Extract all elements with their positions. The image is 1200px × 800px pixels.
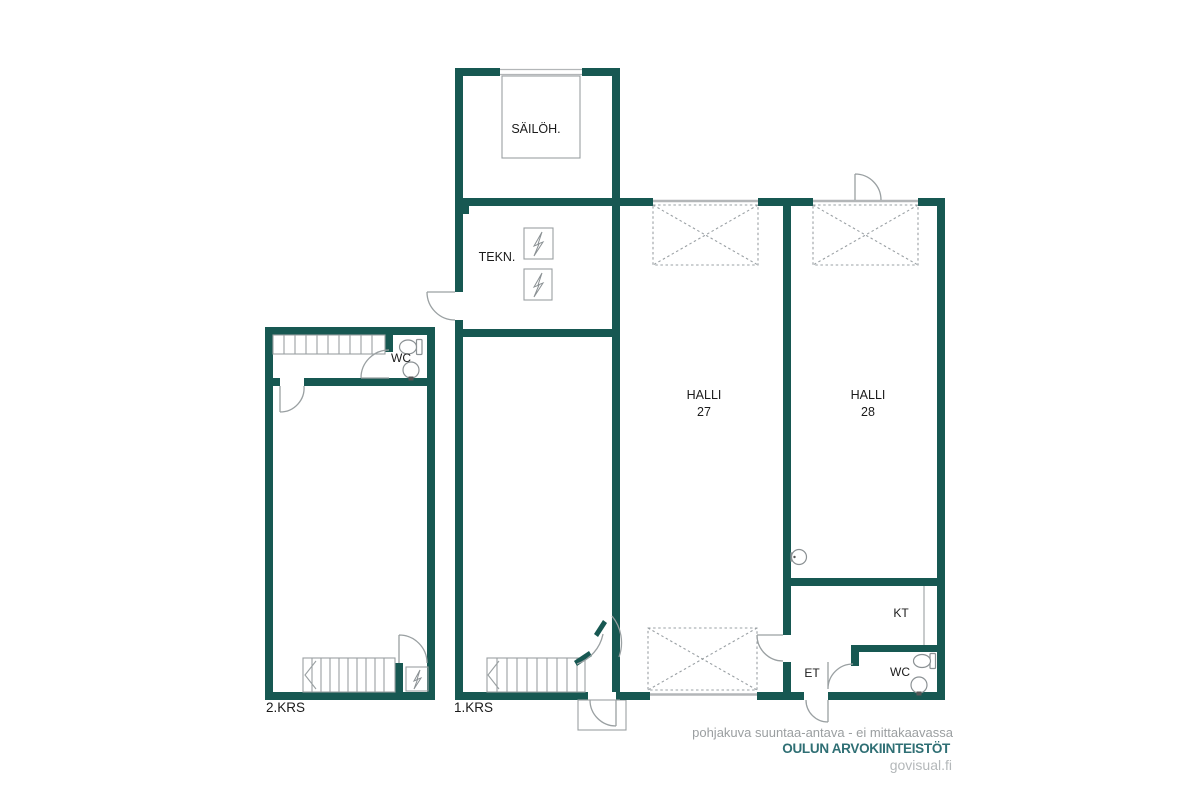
stairs-1krs [487,658,585,692]
stairs-2krs-upper [273,335,385,354]
storage-unit-outline [502,76,580,158]
door-tekn-exterior [427,292,455,320]
overhead-door-symbol [653,205,758,265]
room-label-halli28-number: 28 [861,405,875,419]
room-label-kt: KT [893,606,909,620]
footer-disclaimer: pohjakuva suuntaa-antava - ei mittakaava… [692,725,954,740]
room-label-halli27-number: 27 [697,405,711,419]
sink-icon [791,550,807,565]
overhead-door-symbol [648,628,757,690]
entrance-vestibule [578,700,626,730]
room-label-wc-upper: WC [391,351,411,365]
electrical-panel-icon [524,269,552,300]
room-label-halli28-name: HALLI [851,388,886,402]
footer-website: govisual.fi [890,757,952,773]
stairs-direction-arrow [305,661,316,689]
door-et-wc [828,662,853,689]
room-label-halli27-name: HALLI [687,388,722,402]
floor-label-2krs: 2.KRS [266,700,305,715]
room-label-tekn: TEKN. [479,250,516,264]
overhead-door-symbol [813,205,918,265]
electrical-panel-icon [406,667,428,691]
door-et-halli27 [757,635,783,661]
building-1krs-walls [455,68,620,700]
sailoh-roof-hatch [500,68,582,76]
floor-plan-canvas: SÄILÖH. TEKN. HALLI 27 HALLI 28 WC KT ET… [0,0,1200,800]
floor-label-1krs: 1.KRS [454,700,493,715]
room-label-sailoh: SÄILÖH. [511,122,560,136]
stairs-2krs-lower [303,658,395,692]
footer-company: OULUN ARVOKIINTEISTÖT [782,741,951,756]
door-2krs-corner [399,635,427,663]
halls-walls [620,198,945,700]
door-halli28-top [855,174,881,200]
electrical-panel-icon [524,228,553,259]
door-et-exterior [806,700,828,722]
building-2krs-walls [265,327,435,700]
room-label-et: ET [804,666,820,680]
door-vestibule [590,700,616,726]
toilet-icon [914,654,936,669]
door-2krs-hall [280,386,304,412]
floor-plan-page: SÄILÖH. TEKN. HALLI 27 HALLI 28 WC KT ET… [0,0,1200,800]
room-label-wc-lower: WC [890,665,910,679]
